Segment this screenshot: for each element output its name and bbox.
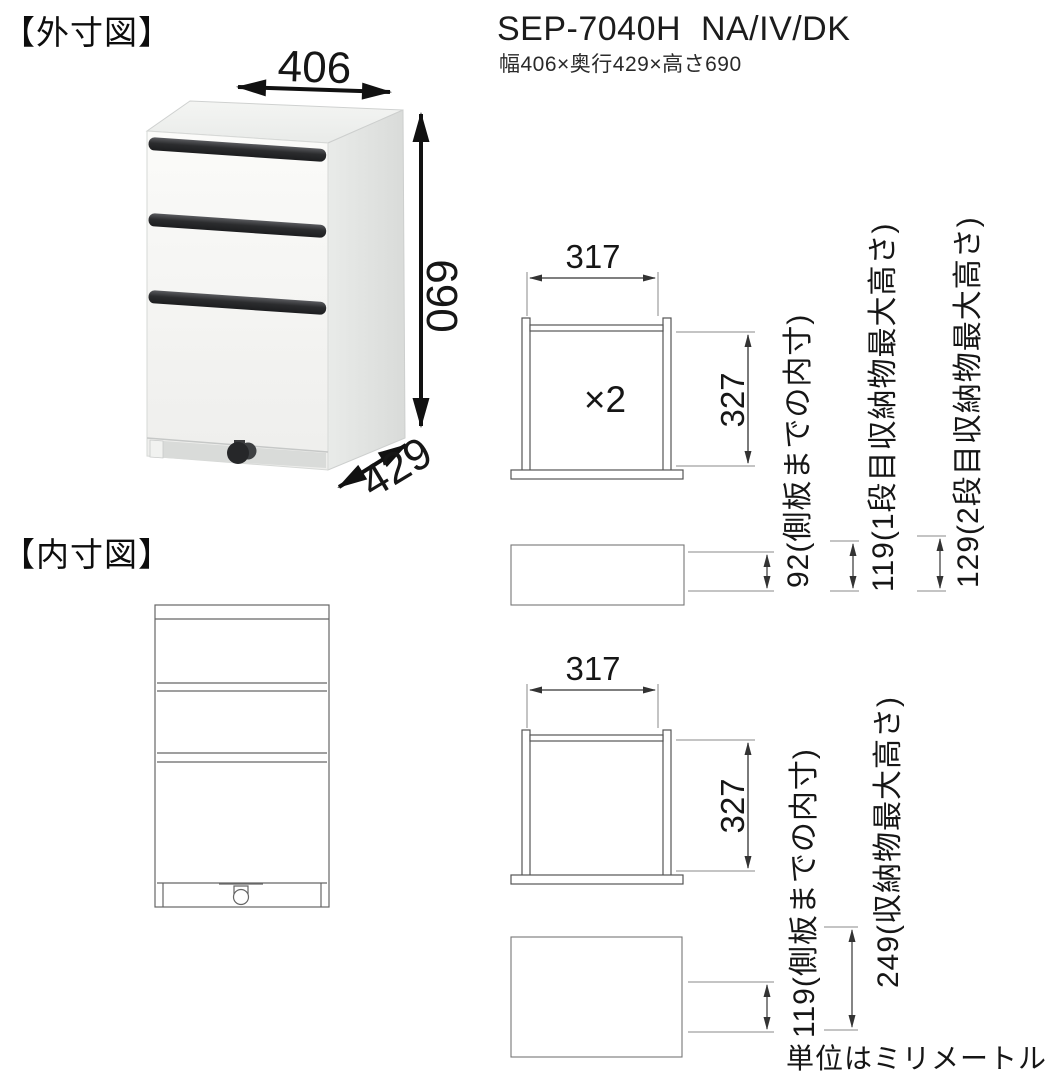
inner-depth-label-top: 327 [714,372,751,427]
base-foot [150,440,163,458]
front-view-outline [155,605,329,907]
units-footnote: 単位はミリメートル [786,1043,1047,1074]
quantity-note-label: ×2 [584,379,626,420]
dimension-diagram-canvas: 406 690 429 317 ×2 [0,0,1051,1080]
inner-bottom-diagram: 317 327 119(側板までの内寸) 249(収納物最大高さ) [511,650,905,1057]
drawer-side-view-upper [511,545,684,605]
side-inner-label-lower: 119(側板までの内寸) [788,748,821,1038]
drawer-top-view-lower [511,730,683,884]
cabinet-front-view-drawing [155,605,329,907]
inner-width-label-top: 317 [565,238,620,275]
inner-width-label-bottom: 317 [565,650,620,687]
side-inner-label-upper: 92(側板までの内寸) [782,314,815,588]
cabinet-side-face [328,110,405,470]
tier1-max-label: 119(1段目収納物最大高さ) [867,223,900,593]
tier2-max-label: 129(2段目収納物最大高さ) [952,216,985,588]
caster-front-view [219,884,263,905]
inner-top-diagram: 317 ×2 327 92(側板までの内寸) 11 [511,216,985,605]
max-height-label: 249(収納物最大高さ) [872,696,905,988]
drawer-side-view-lower [511,937,682,1057]
width-dimension-label: 406 [277,42,352,94]
cabinet-illustration [147,101,405,470]
inner-depth-label-bottom: 327 [714,778,751,833]
height-dimension-label: 690 [417,259,466,332]
